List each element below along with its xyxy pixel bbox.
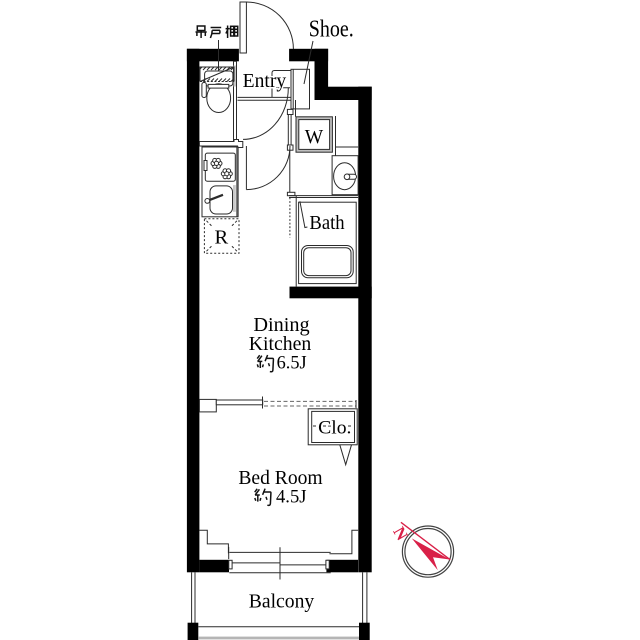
svg-text:Kitchen: Kitchen xyxy=(249,333,312,355)
svg-text:Entry: Entry xyxy=(243,70,287,92)
svg-text:6.5J: 6.5J xyxy=(277,353,307,374)
svg-text:R: R xyxy=(215,227,229,249)
svg-text:Bath: Bath xyxy=(309,212,344,234)
svg-text:Clo.: Clo. xyxy=(318,418,351,439)
svg-text:4.5J: 4.5J xyxy=(276,487,307,508)
svg-text:Balcony: Balcony xyxy=(249,591,314,613)
svg-text:Shoe.: Shoe. xyxy=(309,17,354,43)
svg-text:W: W xyxy=(305,127,324,148)
svg-text:Bed Room: Bed Room xyxy=(238,467,323,489)
